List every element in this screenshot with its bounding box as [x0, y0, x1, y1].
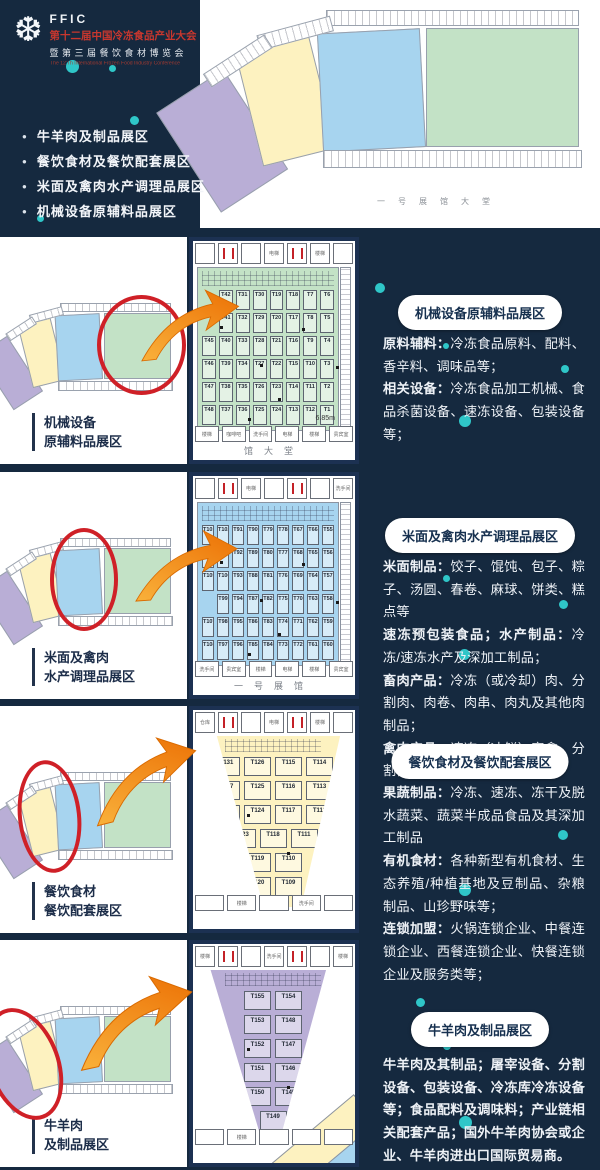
- booth-cell: T95: [232, 617, 244, 637]
- booth-cell: T70: [292, 594, 304, 614]
- booth-row: T123T118T111: [229, 829, 318, 848]
- room-cell: 楼梯: [310, 243, 330, 264]
- corridor: 楼梯: [195, 1129, 353, 1145]
- booth-cell: T145: [275, 1087, 302, 1106]
- pillar-dot: [248, 418, 251, 421]
- fan-corridor: [58, 1084, 172, 1094]
- description-paragraph: 牛羊肉及其制品；屠宰设备、分割设备、包装设备、冷冻库冷冻设备等；食品配料及调味料…: [383, 1054, 585, 1168]
- dense-booth-strip: [225, 739, 322, 752]
- corridor: 洗手间贵宾室楼梯电梯楼梯贵宾室一号展馆: [195, 661, 353, 693]
- booth-cell: T37: [219, 405, 233, 425]
- corridor: 楼梯洗手间: [195, 895, 353, 911]
- pillar-dot: [260, 364, 263, 367]
- booth-cell: T17: [286, 313, 300, 333]
- overview-floor-plan: [208, 10, 590, 190]
- room-cell: [218, 946, 238, 967]
- pillar-dot: [248, 653, 251, 656]
- booth-cell: T117: [275, 805, 302, 824]
- booth-cell: T5: [320, 313, 334, 333]
- booth-cell: T10: [303, 359, 317, 379]
- room-cell: 电梯: [264, 712, 284, 733]
- booth-cell: T24: [270, 405, 284, 425]
- escalator-icon: [292, 951, 303, 962]
- expo-subtitle-en: The 12'Th International Frozen Food Indu…: [50, 61, 180, 66]
- corridor: 楼梯咖啡吧洗手间电梯楼梯贵宾室: [195, 426, 353, 442]
- escalator-icon: [292, 717, 303, 728]
- conference-title: 第十二届中国冷冻食品产业大会: [50, 28, 203, 43]
- highlight-circle: [50, 528, 118, 631]
- plan-label-line: 餐饮配套展区: [44, 903, 122, 918]
- room-cell: 楼梯: [227, 895, 256, 911]
- escalator-icon: [223, 248, 234, 259]
- pillar-dot: [329, 1050, 332, 1053]
- pillar-dot: [329, 816, 332, 819]
- booth-cell: T23: [270, 382, 284, 402]
- room-cell: 贵宾室: [329, 426, 353, 442]
- booth-cell: T153: [244, 1015, 271, 1034]
- booth-cell: T34: [236, 359, 250, 379]
- pillar-dot: [278, 398, 281, 401]
- section-badge: 米面及禽肉水产调理品展区: [385, 518, 575, 553]
- booth-cell: T118: [260, 829, 287, 848]
- description-segment: 果蔬制品：: [383, 785, 450, 800]
- dimension-label: 6.85m: [316, 415, 335, 422]
- booth-cell: T71: [292, 617, 304, 637]
- description-segment: 水产制品：: [498, 627, 572, 642]
- booth-cell: T27: [253, 359, 267, 379]
- pillar-dot: [260, 599, 263, 602]
- booth-cell: T9: [303, 336, 317, 356]
- booth-row: T128T124T117T112: [213, 805, 333, 824]
- booth-cell: T107: [202, 617, 214, 637]
- plan-label-line: 原辅料品展区: [44, 434, 122, 449]
- booth-cell: T151: [244, 1063, 271, 1082]
- pillar-dot: [247, 1048, 250, 1051]
- room-cell: 电梯: [264, 243, 284, 264]
- booth-cell: T90: [247, 525, 259, 545]
- room-cell: [324, 1129, 353, 1145]
- booth-cell: T155: [244, 991, 271, 1010]
- booth-cell: T65: [307, 548, 319, 568]
- event-logo: ❆ FFIC 第十二届中国冷冻食品产业大会 暨第三届餐饮食材博览会 The 12…: [14, 12, 202, 67]
- description-segment: 相关设备：: [383, 381, 450, 396]
- description-paragraph: 速冻预包装食品；水产制品：冷冻/速冻水产及深加工制品；: [383, 624, 585, 669]
- room-cell: [310, 478, 330, 499]
- escalator-icon: [223, 717, 234, 728]
- overview-floor-plan-panel: 一号展馆大堂: [200, 0, 600, 228]
- room-cell: 仓库: [195, 712, 215, 733]
- section-info: 机械设备原辅料品展区 原料辅料：冷冻食品原料、配料、香辛料、调味品等；相关设备：…: [360, 233, 600, 468]
- booth-cell: T109: [275, 877, 302, 896]
- booth-cell: T18: [286, 290, 300, 310]
- section-description: 果蔬制品：冷冻、速冻、冻干及脱水蔬菜、蔬菜半成品食品及其深加工制品有机食材：各种…: [383, 782, 585, 986]
- corridor: 楼梯咖啡吧洗手间电梯楼梯贵宾室馆大堂: [195, 426, 353, 458]
- room-cell: [292, 1129, 321, 1145]
- room-cell: 楼梯: [227, 1129, 256, 1145]
- corridor: 仓库电梯楼梯: [195, 712, 353, 733]
- hall-lobby-caption: 一号展馆大堂: [320, 196, 560, 207]
- booth-cell: T98: [217, 617, 229, 637]
- fan-corridor: [323, 150, 583, 168]
- description-paragraph: 连锁加盟：火锅连锁企业、中餐连锁企业、西餐连锁企业、快餐连锁企业及服务类等；: [383, 918, 585, 986]
- description-segment: 速冻预包装食品；: [383, 627, 498, 642]
- booth-cell: T81: [262, 571, 274, 591]
- plan-label-line: 机械设备: [44, 415, 96, 430]
- booth-cell: T85: [247, 640, 259, 660]
- expo-poster: 一号展馆大堂 ❆ FFIC 第十二届中国冷冻食品产业大会 暨第三届餐饮食材博览会…: [0, 0, 600, 1170]
- booth-cell: T110: [275, 853, 302, 872]
- booth-cell: T77: [277, 548, 289, 568]
- bullet-item: 机械设备原辅料品展区: [22, 199, 205, 224]
- zoom-arrow-icon: [127, 282, 249, 365]
- hall-text: 一号展馆: [195, 679, 353, 692]
- corridor: 洗手间贵宾室楼梯电梯楼梯贵宾室: [195, 661, 353, 677]
- room-cell: [195, 1129, 224, 1145]
- room-cell: 楼梯: [195, 426, 219, 442]
- booth-cell: T13: [286, 405, 300, 425]
- booth-cell: T126: [244, 757, 271, 776]
- section-machinery: 机械设备 原辅料品展区 电梯楼梯T42T31T30T19T18T7T6T41T3…: [0, 233, 600, 468]
- booth-cell: T11: [303, 382, 317, 402]
- booth-cell: T66: [307, 525, 319, 545]
- room-cell: [264, 478, 284, 499]
- corridor: 楼梯洗手间: [195, 895, 353, 927]
- section-rice-noodle-poultry: 米面及禽肉 水产调理品展区 电梯洗手间T101T102T91T90T79T78T…: [0, 468, 600, 702]
- booth-cell: T88: [247, 571, 259, 591]
- booth-cell: T149: [260, 1111, 287, 1130]
- escalator-icon: [223, 951, 234, 962]
- booth-row: T152T147: [244, 1039, 302, 1058]
- bullet-item: 餐饮食材及餐饮配套展区: [22, 149, 205, 174]
- description-segment: 米面制品：: [383, 559, 450, 574]
- zone-booth-area: T131T126T115T114T127T125T116T113T128T124…: [195, 736, 351, 907]
- booth-cell: T96: [232, 640, 244, 660]
- booth-cell: T115: [275, 757, 302, 776]
- room-cell: 洗手间: [264, 946, 284, 967]
- corridor: 电梯楼梯: [195, 243, 353, 264]
- booth-cell: T62: [307, 617, 319, 637]
- room-cell: [287, 243, 307, 264]
- plan-label-line: 牛羊肉: [44, 1118, 83, 1133]
- booth-row: T151T146: [244, 1063, 302, 1082]
- plan-label-line: 水产调理品展区: [44, 669, 135, 684]
- dense-booth-strip: [340, 267, 351, 431]
- booth-cell: T48: [202, 405, 216, 425]
- booth-cell: T2: [320, 382, 334, 402]
- booth-cell: T61: [307, 640, 319, 660]
- description-paragraph: 果蔬制品：冷冻、速冻、冻干及脱水蔬菜、蔬菜半成品食品及其深加工制品: [383, 782, 585, 850]
- plan-label-line: 及制品展区: [44, 1137, 109, 1152]
- room-cell: [259, 1129, 288, 1145]
- booth-cell: T29: [253, 313, 267, 333]
- pillar-dot: [336, 601, 339, 604]
- section-badge: 牛羊肉及制品展区: [411, 1012, 549, 1047]
- description-segment: 原料辅料：: [383, 336, 450, 351]
- zoom-arrow-icon: [123, 524, 246, 605]
- booth-row: T149: [260, 1111, 287, 1130]
- booth-cell: T58: [322, 594, 334, 614]
- booth-cell: T21: [270, 336, 284, 356]
- booth-cell: T83: [262, 617, 274, 637]
- section-badge: 餐饮食材及餐饮配套展区: [391, 744, 568, 779]
- booth-cell: T127: [213, 781, 240, 800]
- room-cell: [241, 243, 261, 264]
- room-cell: [195, 895, 224, 911]
- section-badge: 机械设备原辅料品展区: [398, 295, 562, 330]
- section-description: 原料辅料：冷冻食品原料、配料、香辛料、调味品等；相关设备：冷冻食品加工机械、食品…: [383, 333, 585, 447]
- booth-cell: T78: [277, 525, 289, 545]
- booth-cell: T28: [253, 336, 267, 356]
- room-cell: [195, 243, 215, 264]
- pillar-dot: [302, 328, 305, 331]
- room-cell: [310, 946, 330, 967]
- booth-cell: T57: [322, 571, 334, 591]
- description-segment: 畜肉产品：: [383, 673, 450, 688]
- logo-abbr: FFIC: [50, 12, 203, 26]
- booth-cell: T20: [270, 313, 284, 333]
- room-cell: 洗手间: [292, 895, 321, 911]
- room-cell: 楼梯: [249, 661, 273, 677]
- booth-cell: T30: [253, 290, 267, 310]
- description-paragraph: 有机食材：各种新型有机食材、生态养殖/种植基地及豆制品、杂粮制品、山珍野味等；: [383, 850, 585, 918]
- description-paragraph: 原料辅料：冷冻食品原料、配料、香辛料、调味品等；: [383, 333, 585, 378]
- booth-row: T131T126T115T114: [213, 757, 333, 776]
- booth-cell: T26: [253, 382, 267, 402]
- booth-cell: T128: [213, 805, 240, 824]
- pillar-dot: [302, 563, 305, 566]
- booth-cell: T108: [202, 640, 214, 660]
- booth-cell: T67: [292, 525, 304, 545]
- booth-cell: T38: [219, 382, 233, 402]
- booth-cell: T39: [219, 359, 233, 379]
- booth-cell: T120: [244, 877, 271, 896]
- booth-cell: T97: [217, 640, 229, 660]
- booth-cell: T16: [286, 336, 300, 356]
- booth-row: T153T148: [244, 1015, 302, 1034]
- booth-cell: T22: [270, 359, 284, 379]
- booth-cell: T36: [236, 405, 250, 425]
- accent-dot: [375, 283, 385, 293]
- booth-row: T150T145: [244, 1087, 302, 1106]
- booth-cell: T14: [286, 382, 300, 402]
- booth-cell: T154: [275, 991, 302, 1010]
- plan-label-line: 米面及禽肉: [44, 650, 109, 665]
- booth-cell: T46: [202, 359, 216, 379]
- floor-plan-zone-green: [426, 28, 579, 147]
- room-cell: 洗手间: [195, 661, 219, 677]
- booth-cell: T150: [244, 1087, 271, 1106]
- booth-cell: T55: [322, 525, 334, 545]
- room-cell: 楼梯: [302, 426, 326, 442]
- booth-cell: T131: [213, 757, 240, 776]
- dense-booth-strip: [225, 973, 322, 986]
- room-cell: 电梯: [275, 661, 299, 677]
- room-cell: [333, 712, 353, 733]
- corridor: 楼梯洗手间楼梯: [195, 946, 353, 967]
- room-cell: 洗手间: [249, 426, 273, 442]
- booth-row: T119T110: [244, 853, 302, 872]
- room-cell: 楼梯: [195, 946, 215, 967]
- room-cell: [218, 243, 238, 264]
- room-cell: 楼梯: [310, 712, 330, 733]
- logo-text-block: FFIC 第十二届中国冷冻食品产业大会 暨第三届餐饮食材博览会 The 12'T…: [50, 12, 203, 67]
- plan-label-line: 餐饮食材: [44, 884, 96, 899]
- snowflake-icon: ❆: [14, 12, 43, 48]
- booth-cell: T89: [247, 548, 259, 568]
- room-cell: 电梯: [275, 426, 299, 442]
- escalator-icon: [292, 248, 303, 259]
- booth-cell: T79: [262, 525, 274, 545]
- booth-cell: T64: [307, 571, 319, 591]
- pillar-dot: [336, 366, 339, 369]
- booth-cell: T76: [277, 571, 289, 591]
- description-paragraph: 米面制品：饺子、馄饨、包子、粽子、汤圆、春卷、麻球、饼类、糕点等: [383, 556, 585, 624]
- room-cell: [218, 478, 238, 499]
- booth-cell: T146: [275, 1063, 302, 1082]
- booth-row: T155T154: [244, 991, 302, 1010]
- pillar-dot: [247, 814, 250, 817]
- booth-cell: T114: [306, 757, 333, 776]
- booth-cell: T147: [275, 1039, 302, 1058]
- plan-label: 餐饮食材 餐饮配套展区: [32, 882, 122, 920]
- description-segment: 牛羊肉及其制品；屠宰设备、分割设备、包装设备、冷冻库冷冻设备等；食品配料及调味料…: [383, 1057, 585, 1163]
- booth-cell: T72: [292, 640, 304, 660]
- accent-dot: [416, 998, 425, 1007]
- booth-cell: T125: [244, 781, 271, 800]
- booth-cell: T123: [229, 829, 256, 848]
- plan-label: 机械设备 原辅料品展区: [32, 413, 122, 451]
- escalator-icon: [292, 483, 303, 494]
- room-cell: [287, 712, 307, 733]
- booth-cell: T19: [270, 290, 284, 310]
- room-cell: 楼梯: [333, 946, 353, 967]
- room-cell: [324, 895, 353, 911]
- room-cell: 电梯: [241, 478, 261, 499]
- floor-plan-zone-blue: [317, 28, 426, 152]
- booth-cell: T116: [275, 781, 302, 800]
- booth-cell: T73: [277, 640, 289, 660]
- section-info: 米面及禽肉水产调理品展区 米面制品：饺子、馄饨、包子、粽子、汤圆、春卷、麻球、饼…: [360, 468, 600, 702]
- booth-cell: T8: [303, 313, 317, 333]
- room-cell: [241, 946, 261, 967]
- fan-corridor: [326, 10, 578, 26]
- booth-cell: T113: [306, 781, 333, 800]
- zoomed-floor-plan: 仓库电梯楼梯T131T126T115T114T127T125T116T113T1…: [189, 706, 359, 933]
- bullet-item: 牛羊肉及制品展区: [22, 124, 205, 149]
- booth-row: T120T109: [244, 877, 302, 896]
- booth-grid: T131T126T115T114T127T125T116T113T128T124…: [195, 736, 351, 907]
- booth-cell: T25: [253, 405, 267, 425]
- zone-bullet-list: 牛羊肉及制品展区餐饮食材及餐饮配套展区米面及禽肉水产调理品展区机械设备原辅料品展…: [22, 124, 205, 224]
- room-cell: 咖啡吧: [222, 426, 246, 442]
- room-cell: [333, 243, 353, 264]
- expo-subtitle: 暨第三届餐饮食材博览会: [50, 46, 203, 59]
- booth-cell: T80: [262, 548, 274, 568]
- corridor: 楼梯: [195, 1129, 353, 1161]
- booth-cell: T82: [262, 594, 274, 614]
- room-cell: [241, 712, 261, 733]
- booth-cell: T47: [202, 382, 216, 402]
- room-cell: [195, 478, 215, 499]
- pillar-dot: [287, 1086, 290, 1089]
- booth-cell: T112: [306, 805, 333, 824]
- pillar-dot: [278, 633, 281, 636]
- bullet-item: 米面及禽肉水产调理品展区: [22, 174, 205, 199]
- booth-cell: T4: [320, 336, 334, 356]
- section-description: 牛羊肉及其制品；屠宰设备、分割设备、包装设备、冷冻库冷冻设备等；食品配料及调味料…: [383, 1054, 585, 1168]
- dense-booth-strip: [340, 502, 351, 666]
- room-cell: [287, 946, 307, 967]
- hall-text: 馆大堂: [195, 444, 353, 457]
- booth-cell: T15: [286, 359, 300, 379]
- room-cell: 洗手间: [333, 478, 353, 499]
- booth-cell: T148: [275, 1015, 302, 1034]
- booth-cell: T60: [322, 640, 334, 660]
- corridor: 电梯洗手间: [195, 478, 353, 499]
- booth-cell: T111: [291, 829, 318, 848]
- escalator-icon: [223, 483, 234, 494]
- dense-booth-strip: [202, 506, 334, 521]
- room-cell: 贵宾室: [222, 661, 246, 677]
- room-cell: 楼梯: [302, 661, 326, 677]
- booth-cell: T59: [322, 617, 334, 637]
- zoom-arrow-shape: [135, 287, 243, 361]
- booth-cell: T35: [236, 382, 250, 402]
- booth-cell: T84: [262, 640, 274, 660]
- booth-cell: T86: [247, 617, 259, 637]
- plan-label: 牛羊肉 及制品展区: [32, 1116, 109, 1154]
- room-cell: [259, 895, 288, 911]
- booth-cell: T119: [244, 853, 271, 872]
- zoom-arrow-shape: [131, 529, 240, 601]
- room-cell: [287, 478, 307, 499]
- plan-label: 米面及禽肉 水产调理品展区: [32, 648, 135, 686]
- booth-cell: T75: [277, 594, 289, 614]
- booth-cell: T7: [303, 290, 317, 310]
- booth-cell: T87: [247, 594, 259, 614]
- zoomed-floor-plan: 楼梯洗手间楼梯T155T154T153T148T152T147T151T146T…: [189, 940, 359, 1167]
- booth-cell: T56: [322, 548, 334, 568]
- booth-cell: T69: [292, 571, 304, 591]
- room-cell: [218, 712, 238, 733]
- description-segment: 有机食材：: [383, 853, 450, 868]
- booth-cell: T63: [307, 594, 319, 614]
- room-cell: 贵宾室: [329, 661, 353, 677]
- booth-cell: T6: [320, 290, 334, 310]
- description-paragraph: 畜肉产品：冷冻（或冷却）肉、分割肉、肉卷、肉串、肉丸及其他肉制品；: [383, 670, 585, 738]
- description-paragraph: 相关设备：冷冻食品加工机械、食品杀菌设备、速冻设备、包装设备等；: [383, 378, 585, 446]
- description-segment: 连锁加盟：: [383, 921, 450, 936]
- booth-row: T127T125T116T113: [213, 781, 333, 800]
- booth-cell: T3: [320, 359, 334, 379]
- pillar-dot: [287, 852, 290, 855]
